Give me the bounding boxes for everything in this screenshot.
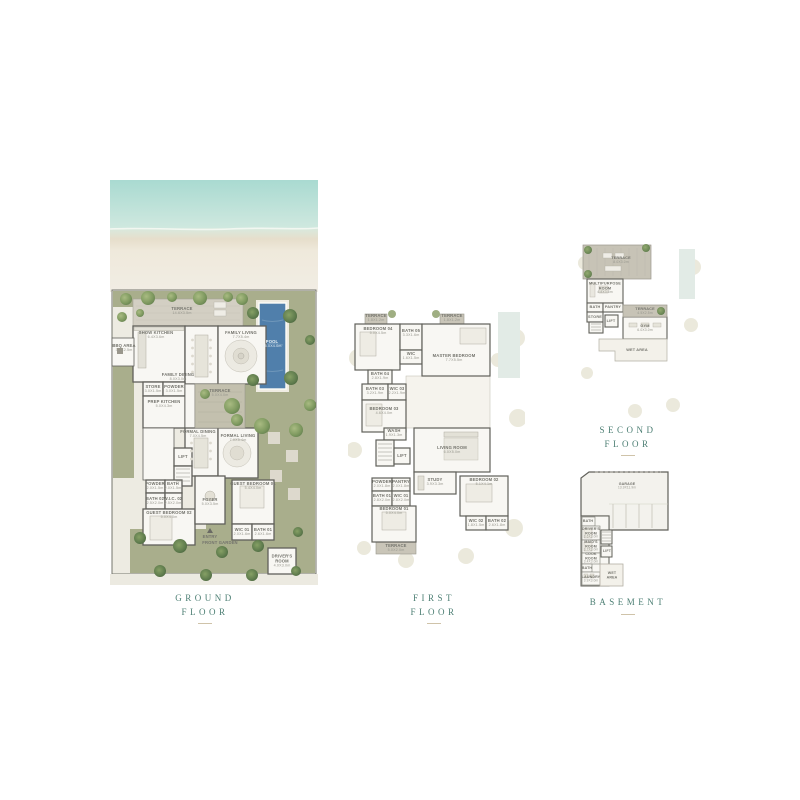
room-prep-kitchen	[143, 396, 185, 428]
pool-ghost	[498, 312, 520, 378]
gym-equipment	[653, 323, 661, 327]
floorplan-sheet: TERRACE14.6X3.5mPOOL15.0X4.0mSHOW KITCHE…	[0, 0, 800, 800]
first-floor-caption: FIRST FLOOR	[394, 592, 474, 624]
bed	[360, 332, 376, 356]
sun-lounger	[214, 302, 226, 308]
stairs	[589, 322, 603, 333]
gym-equipment	[629, 323, 637, 327]
basement-caption: BASEMENT	[588, 596, 668, 615]
caption-line: FIRST	[394, 592, 474, 606]
caption-line: BASEMENT	[588, 596, 668, 610]
kitchen-island	[138, 332, 146, 368]
bed	[150, 516, 172, 540]
first-floor-plan: TERRACE1.8X1.2mTERRACE1.8X1.2mBEDROOM 04…	[348, 300, 525, 570]
bed	[584, 528, 592, 538]
ground-floor-caption: GROUND FLOOR	[165, 592, 245, 624]
room-store	[143, 382, 163, 396]
room-wic	[400, 350, 422, 364]
room-gym	[623, 317, 667, 339]
bed	[366, 404, 382, 426]
room-lift	[394, 448, 410, 464]
room-wash	[384, 428, 406, 440]
room-lift	[605, 315, 618, 327]
bed	[382, 512, 406, 530]
room-wic-02	[466, 516, 486, 530]
room-bath-01	[372, 491, 392, 506]
house-walls	[355, 324, 508, 542]
ground-floor-drawing	[110, 180, 318, 585]
caption-underline	[621, 455, 635, 456]
room-bath-2	[582, 564, 592, 572]
room-lift	[174, 448, 192, 466]
formal-dining-table	[194, 438, 208, 468]
room-lift	[601, 546, 612, 557]
void-roof	[406, 376, 490, 428]
room-bath-04	[368, 370, 392, 384]
room-bath	[582, 517, 595, 526]
second-floor-drawing	[575, 233, 705, 423]
bed	[584, 542, 592, 551]
upper-terrace	[623, 305, 667, 317]
room-bath-02	[486, 516, 508, 530]
washer	[590, 574, 594, 578]
first-floor-drawing	[348, 300, 525, 570]
room-bath	[587, 303, 603, 312]
room-bath-05	[400, 324, 422, 350]
foyer-table	[205, 491, 215, 501]
caption-line: FLOOR	[394, 606, 474, 620]
pool-ghost	[679, 249, 695, 299]
wet-area	[600, 564, 623, 586]
room-pantry	[603, 303, 623, 312]
caption-underline	[621, 614, 635, 615]
second-floor-caption: SECOND FLOOR	[588, 424, 668, 456]
room-powder	[163, 382, 185, 396]
washer	[584, 574, 588, 578]
caption-line: FLOOR	[588, 438, 668, 452]
table	[599, 286, 608, 293]
room-store	[587, 312, 603, 322]
room-pantry	[392, 478, 410, 491]
caption-line: SECOND	[588, 424, 668, 438]
basement-drawing	[565, 458, 705, 593]
room-powder	[372, 478, 392, 491]
room-wic-01	[392, 491, 410, 506]
caption-underline	[427, 623, 441, 624]
room-wic-03	[388, 384, 406, 400]
room-cook	[582, 553, 600, 564]
roof-terrace	[583, 244, 651, 279]
sofa	[590, 283, 595, 297]
bed	[240, 486, 264, 508]
bed	[466, 484, 492, 502]
gym-equipment	[641, 323, 649, 327]
room-bath-03	[362, 384, 388, 400]
living-rug	[444, 438, 478, 460]
study-desk	[418, 476, 424, 490]
sun-lounger	[214, 310, 226, 316]
beach	[110, 180, 318, 292]
dining-table	[195, 335, 208, 377]
bbq-grill	[117, 348, 123, 354]
sidewalk	[110, 574, 318, 585]
second-floor-plan: TERRACE8.0X3.0mMULTIPURPOSEROOM4.8X3.6mB…	[575, 233, 705, 423]
basement-plan: GARAGE13.9X11.9mBATHDRIVER'SROOM3.6X3.0m…	[565, 458, 705, 593]
wet-area-roof	[599, 339, 667, 361]
caption-underline	[198, 623, 212, 624]
garden-strip-left	[113, 366, 134, 478]
caption-line: FLOOR	[165, 606, 245, 620]
caption-line: GROUND	[165, 592, 245, 606]
ground-floor-plan: TERRACE14.6X3.5mPOOL15.0X4.0mSHOW KITCHE…	[110, 180, 318, 585]
bed	[460, 328, 486, 344]
